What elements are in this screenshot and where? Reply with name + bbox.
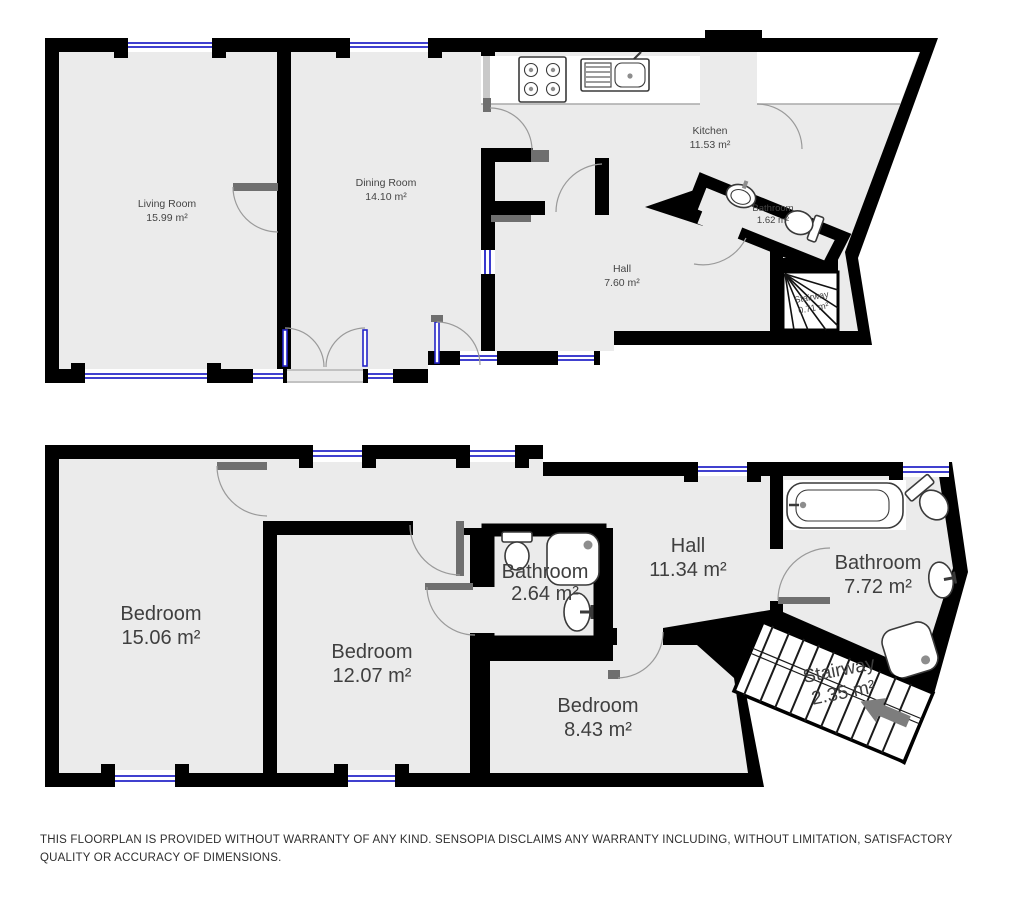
label-bathroom-upper-area: 1.62 m²	[757, 215, 789, 226]
label-hall-lower-area: 11.34 m²	[649, 559, 727, 581]
label-bedroom-15-area: 15.06 m²	[122, 627, 201, 649]
label-dining-room-area: 14.10 m²	[365, 191, 407, 203]
lower-floorplan: Bedroom 15.06 m² Bedroom 12.07 m² Bathro…	[45, 445, 968, 787]
label-kitchen-area: 11.53 m²	[690, 139, 731, 151]
label-bathroom-upper-name: Bathroom	[752, 203, 793, 214]
label-dining-room-name: Dining Room	[356, 177, 417, 189]
label-bathroom-2-name: Bathroom	[502, 561, 589, 583]
label-bedroom-12-name: Bedroom	[331, 641, 412, 663]
label-bathroom-7-area: 7.72 m²	[844, 576, 912, 598]
label-bathroom-7-name: Bathroom	[835, 552, 922, 574]
label-hall-lower-name: Hall	[671, 535, 705, 557]
room-living-room	[59, 52, 277, 369]
label-bedroom-8-area: 8.43 m²	[564, 719, 632, 741]
label-bathroom-2-area: 2.64 m²	[511, 583, 579, 605]
stove-icon	[519, 57, 566, 102]
floorplan-drawing: Living Room 15.99 m² Dining Room 14.10 m…	[0, 0, 1030, 820]
room-dining-room	[291, 52, 481, 369]
label-living-room-name: Living Room	[138, 198, 197, 210]
disclaimer-text: THIS FLOORPLAN IS PROVIDED WITHOUT WARRA…	[40, 831, 962, 868]
lower-interior-walls	[263, 521, 277, 773]
label-bedroom-15-name: Bedroom	[120, 603, 201, 625]
label-kitchen-name: Kitchen	[692, 125, 727, 137]
upper-floorplan: Living Room 15.99 m² Dining Room 14.10 m…	[45, 30, 938, 383]
bathtub-icon	[784, 480, 906, 530]
floorplan-page: Living Room 15.99 m² Dining Room 14.10 m…	[0, 0, 1030, 900]
label-living-room-area: 15.99 m²	[146, 212, 188, 224]
label-hall-upper-name: Hall	[613, 263, 631, 275]
label-bedroom-12-area: 12.07 m²	[333, 665, 412, 687]
label-bedroom-8-name: Bedroom	[557, 695, 638, 717]
label-hall-upper-area: 7.60 m²	[604, 277, 640, 289]
